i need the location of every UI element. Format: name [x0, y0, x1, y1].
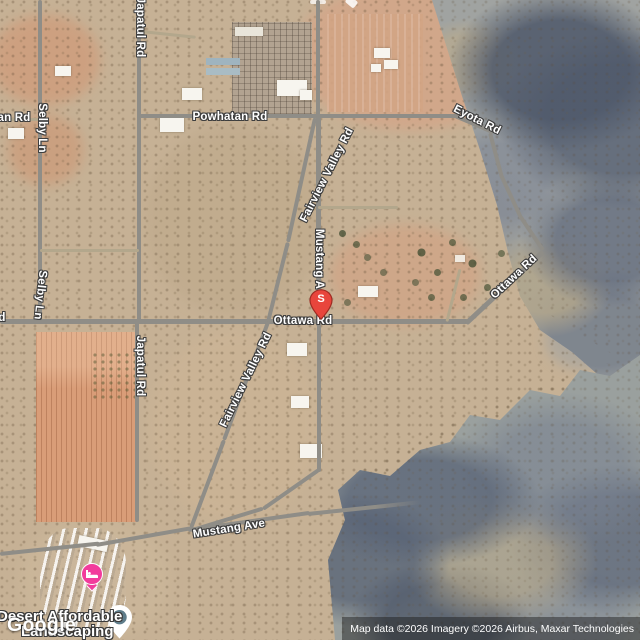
road-label-selby-ln-north: Selby Ln — [36, 103, 48, 153]
road-mustang-south — [317, 324, 321, 472]
road-label-mustang-ave-vertical: Mustang A — [313, 229, 325, 289]
bed-icon — [85, 567, 99, 581]
road-ottawa-rd — [0, 319, 468, 324]
road-mustang-north — [316, 0, 320, 118]
satellite-map-canvas[interactable]: Japatul Rd Selby Ln an Rd Powhatan Rd Ey… — [0, 0, 640, 640]
tilled-field — [327, 14, 423, 112]
destination-marker-s[interactable]: S — [309, 289, 333, 320]
road-label-ottawa-rd-west-fragment: d — [0, 312, 6, 324]
road-label-japatul-rd-north: Japatul Rd — [134, 0, 146, 57]
road-label-japatul-rd-south: Japatul Rd — [134, 336, 146, 397]
farm-field-green-speckle — [92, 352, 136, 400]
building — [384, 60, 398, 69]
attribution-bar: Map data ©2026 Imagery ©2026 Airbus, Max… — [342, 617, 640, 640]
road-powhatan-rd — [138, 114, 458, 118]
building — [235, 27, 263, 36]
google-logo[interactable]: Google — [7, 614, 76, 637]
greenhouse — [206, 58, 240, 65]
building — [358, 286, 378, 297]
marker-letter: S — [309, 293, 333, 305]
building — [291, 396, 309, 408]
road-label-powhatan-rd: Powhatan Rd — [192, 111, 267, 123]
driveway — [318, 206, 398, 209]
building — [455, 255, 465, 262]
building — [374, 48, 390, 58]
building — [182, 88, 202, 100]
building — [287, 343, 307, 356]
greenhouse — [206, 68, 240, 75]
road-label-fragment-west: an Rd — [0, 112, 30, 124]
building — [55, 66, 71, 76]
building — [371, 64, 381, 72]
driveway — [40, 249, 139, 252]
building — [300, 90, 312, 100]
tree-dots — [0, 0, 3, 3]
building — [160, 116, 184, 132]
attribution-text: Map data ©2026 Imagery ©2026 Airbus, Max… — [350, 623, 634, 635]
lodging-poi-pin[interactable] — [79, 562, 105, 596]
building — [8, 128, 24, 139]
